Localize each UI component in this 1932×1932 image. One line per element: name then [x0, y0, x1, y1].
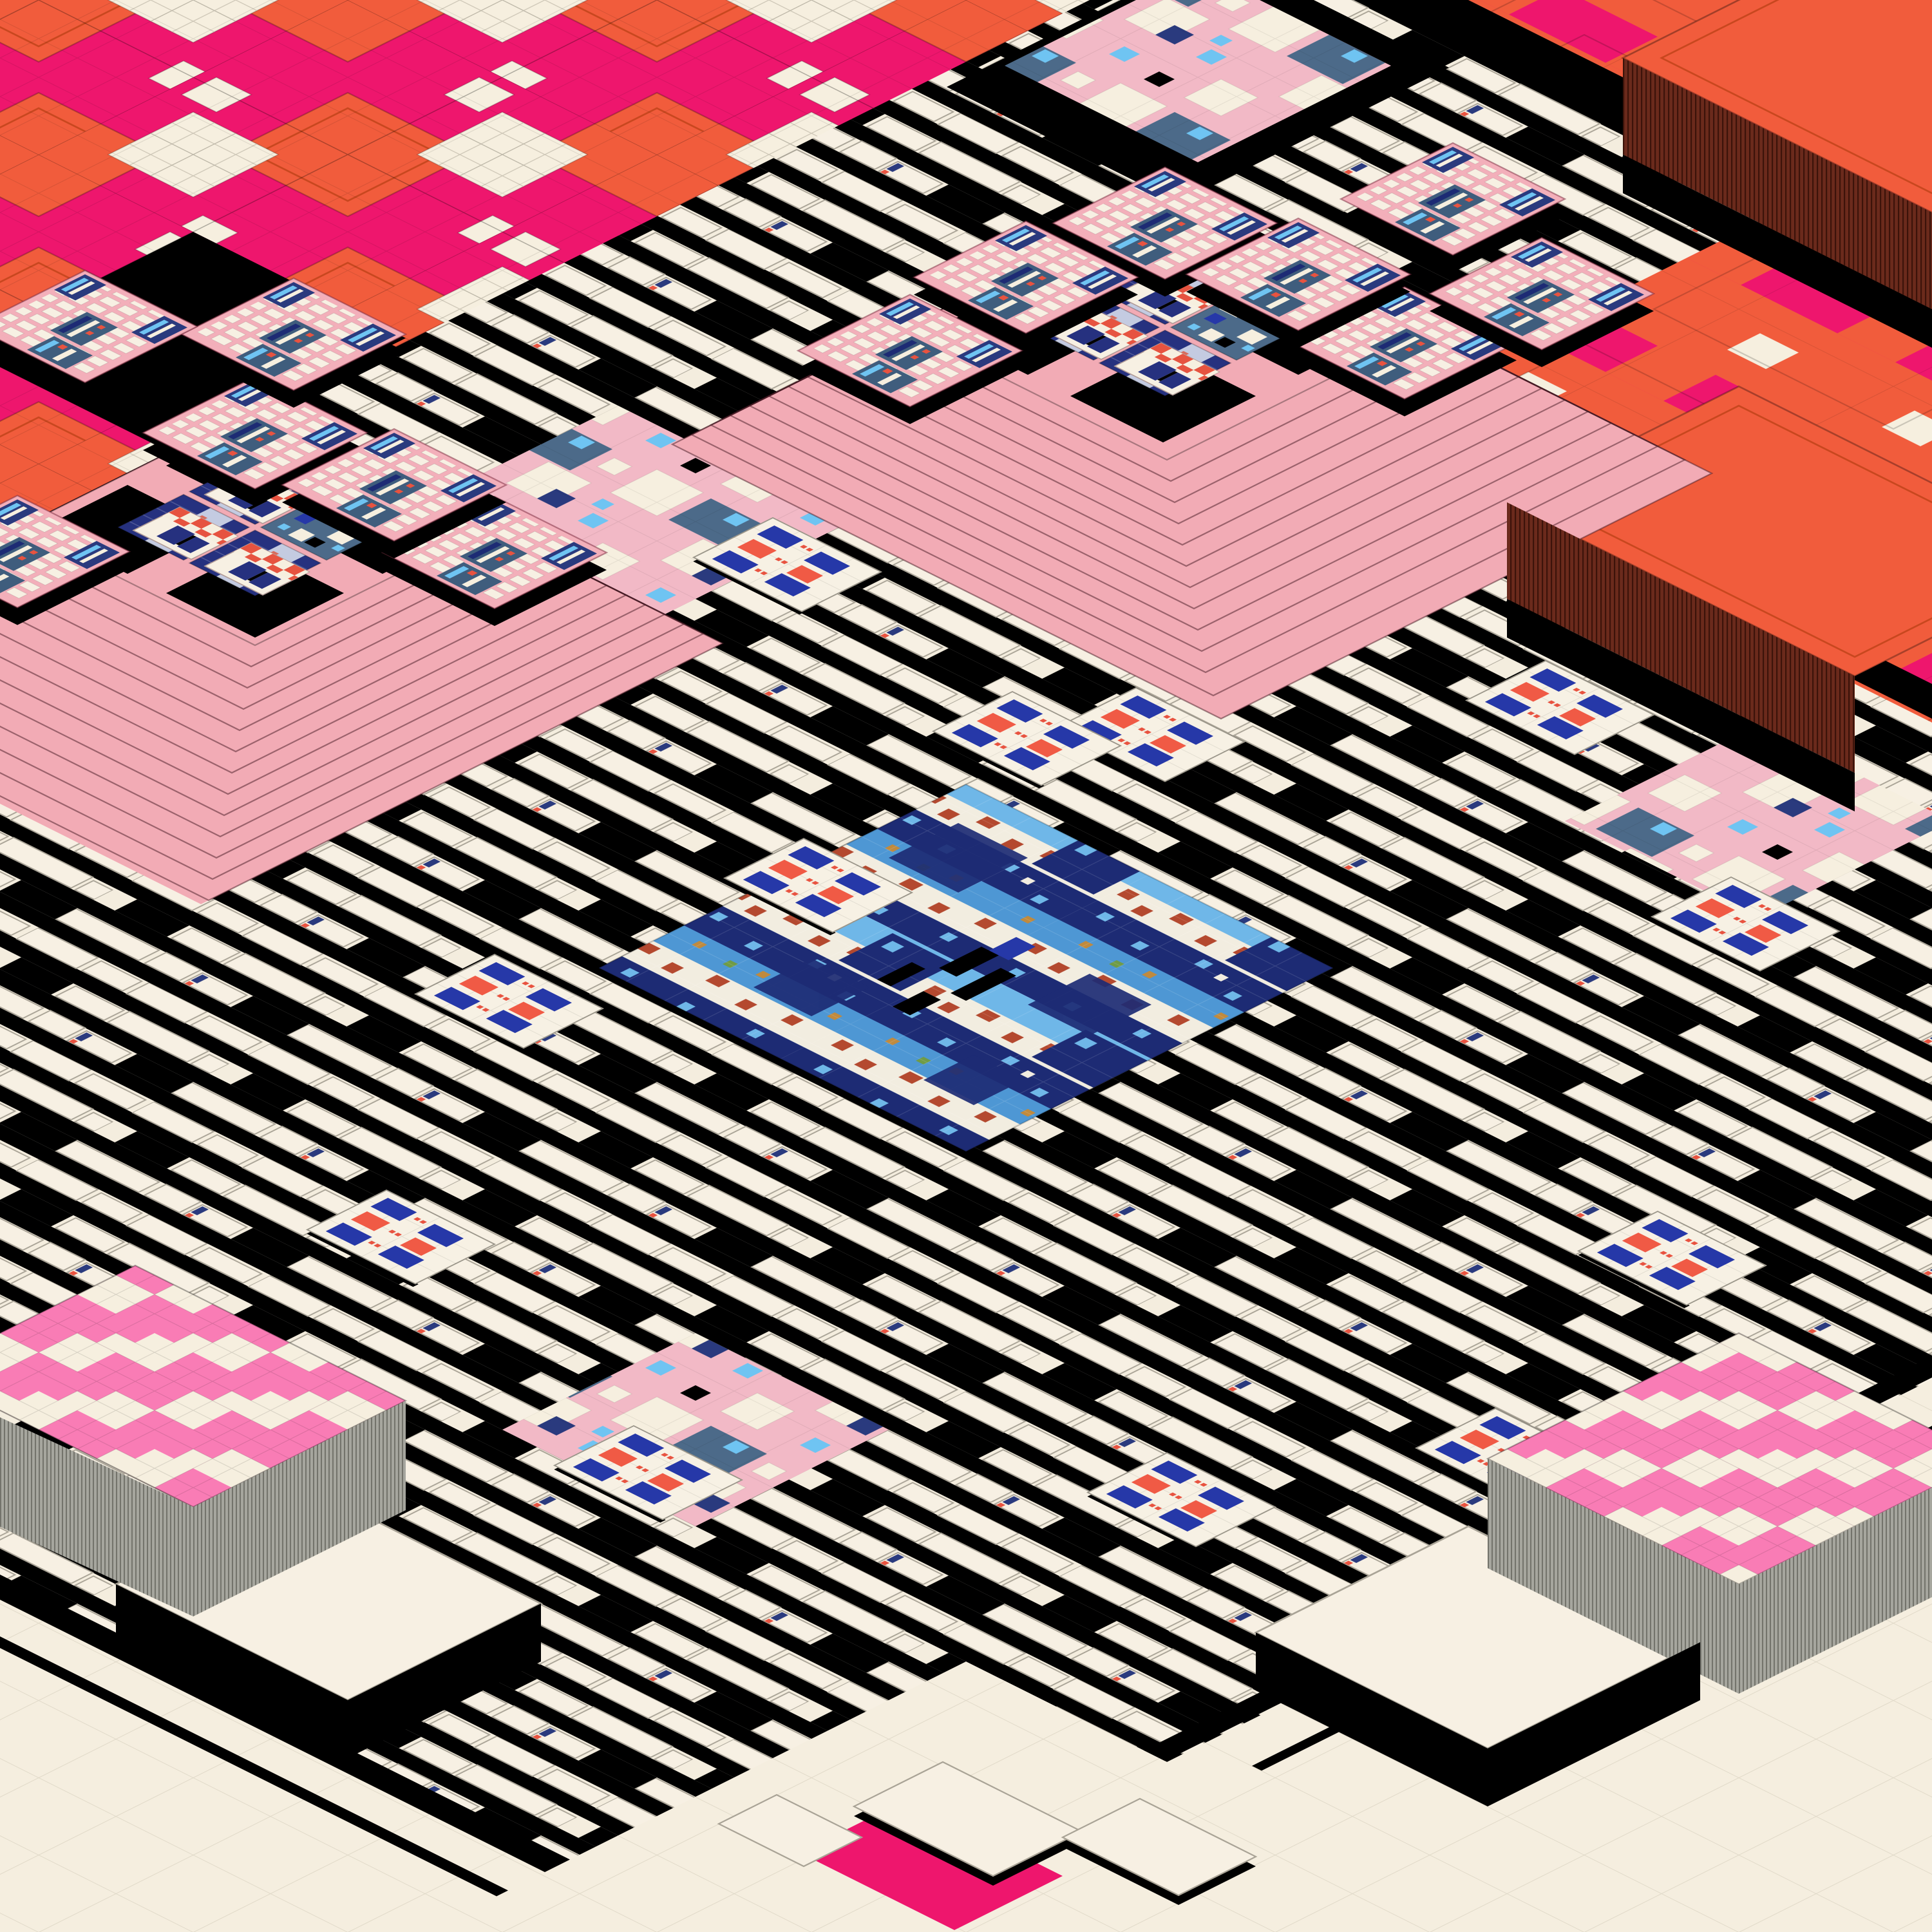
artwork-canvas: Isometric generative cityscape Axonometr…: [0, 0, 1932, 1932]
isometric-cityscape: Isometric generative cityscape Axonometr…: [0, 0, 1932, 1932]
